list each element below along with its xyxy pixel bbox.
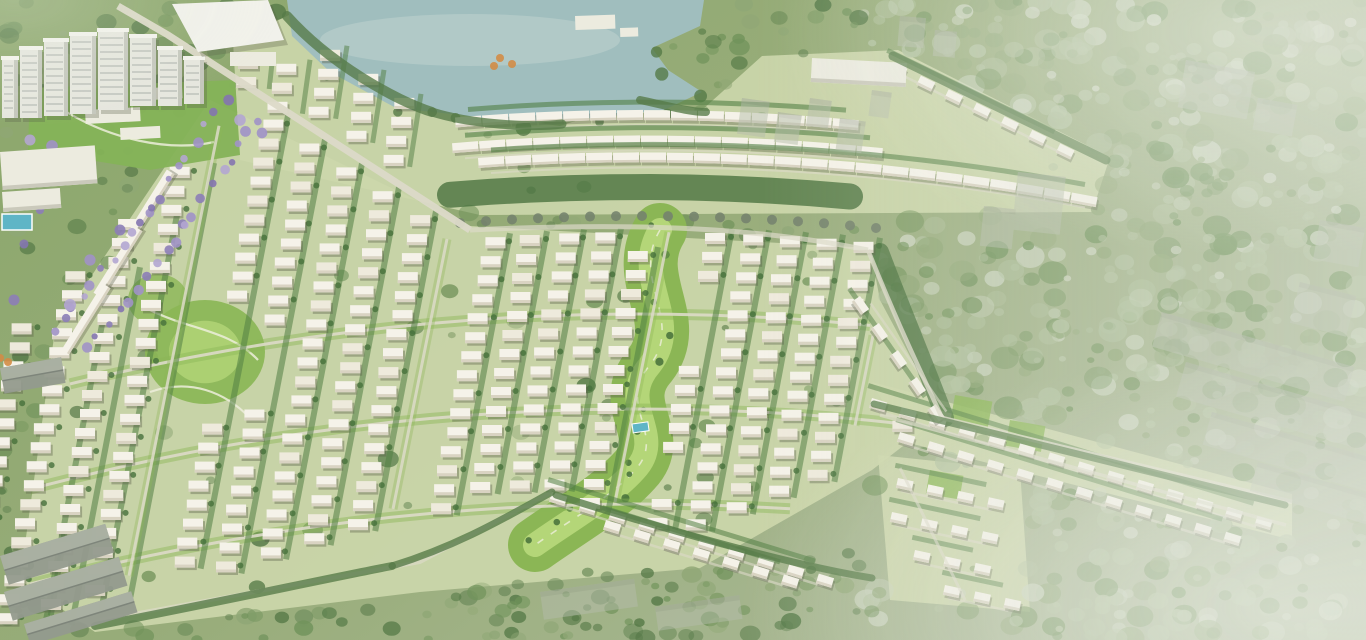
aerial-render-canvas [0, 0, 1366, 640]
atmospheric-haze [0, 0, 1366, 640]
township-aerial-rendering [0, 0, 1366, 640]
